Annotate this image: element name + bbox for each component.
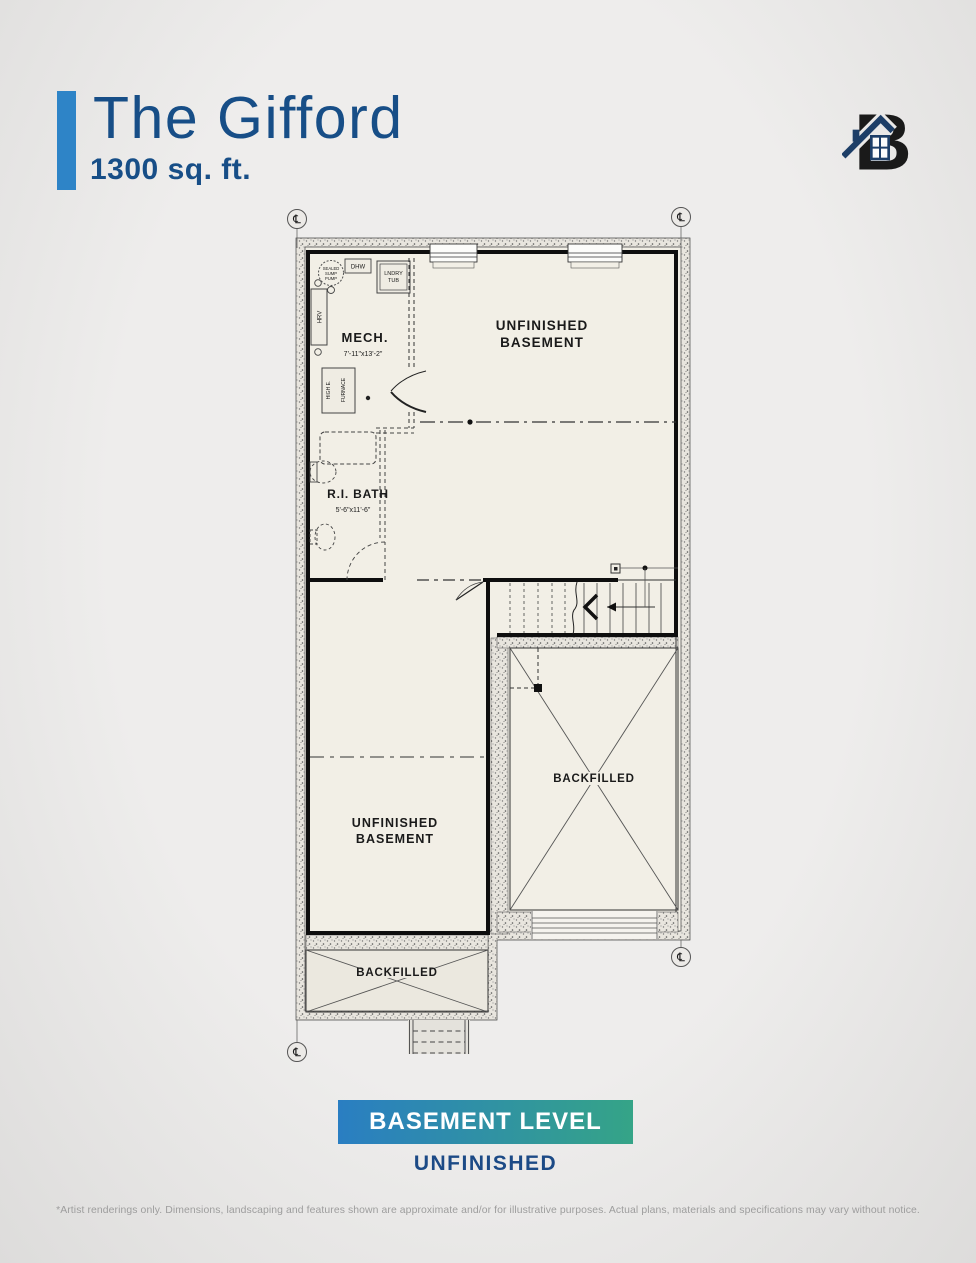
laundry-tub xyxy=(377,261,410,293)
centerline-icon: ℄ xyxy=(676,951,685,965)
floor-drain-icon xyxy=(366,396,370,400)
level-banner-label: BASEMENT LEVEL xyxy=(369,1108,602,1136)
title-accent-bar xyxy=(57,91,76,190)
page-title: The Gifford xyxy=(93,84,404,152)
builder-logo-icon: B xyxy=(842,96,922,182)
disclaimer-text: *Artist renderings only. Dimensions, lan… xyxy=(0,1205,976,1216)
svg-text:DHW: DHW xyxy=(351,265,366,271)
centerline-icon: ℄ xyxy=(292,213,301,227)
front-stoop xyxy=(408,1020,470,1054)
svg-text:BASEMENT: BASEMENT xyxy=(500,335,584,350)
svg-text:PUMP: PUMP xyxy=(325,276,337,281)
level-status: UNFINISHED xyxy=(338,1152,633,1176)
garage-door-opening xyxy=(531,911,658,939)
garage-backfilled-label: BACKFILLED xyxy=(553,773,634,785)
svg-text:HIGH E.: HIGH E. xyxy=(326,381,332,400)
builder-logo: B xyxy=(842,96,922,182)
svg-text:BASEMENT: BASEMENT xyxy=(356,832,434,846)
bath-room-dims: 5'-6"x11'-6" xyxy=(336,507,371,514)
floor-plan: SEALED SUMP PUMP DHW LNDRY TUB HRV HIGH … xyxy=(270,190,710,1070)
svg-text:HRV: HRV xyxy=(318,311,324,324)
page-subtitle: 1300 sq. ft. xyxy=(90,153,251,187)
post-icon xyxy=(534,684,542,692)
bath-room-label: R.I. BATH xyxy=(327,487,389,501)
svg-text:TUB: TUB xyxy=(388,278,399,284)
chimney-icon xyxy=(853,130,860,142)
mech-room-label: MECH. xyxy=(342,330,389,345)
level-banner: BASEMENT LEVEL xyxy=(338,1100,633,1144)
svg-text:LNDRY: LNDRY xyxy=(384,271,403,277)
svg-text:UNFINISHED: UNFINISHED xyxy=(496,318,589,333)
mech-room-dims: 7'-11"x13'-2" xyxy=(344,351,383,358)
svg-text:FURNACE: FURNACE xyxy=(341,377,347,402)
porch-backfilled-label: BACKFILLED xyxy=(356,967,437,979)
centerline-icon: ℄ xyxy=(292,1046,301,1060)
brochure-page: The Gifford 1300 sq. ft. B xyxy=(0,0,976,1263)
centerline-icon: ℄ xyxy=(676,211,685,225)
svg-text:UNFINISHED: UNFINISHED xyxy=(352,816,438,830)
